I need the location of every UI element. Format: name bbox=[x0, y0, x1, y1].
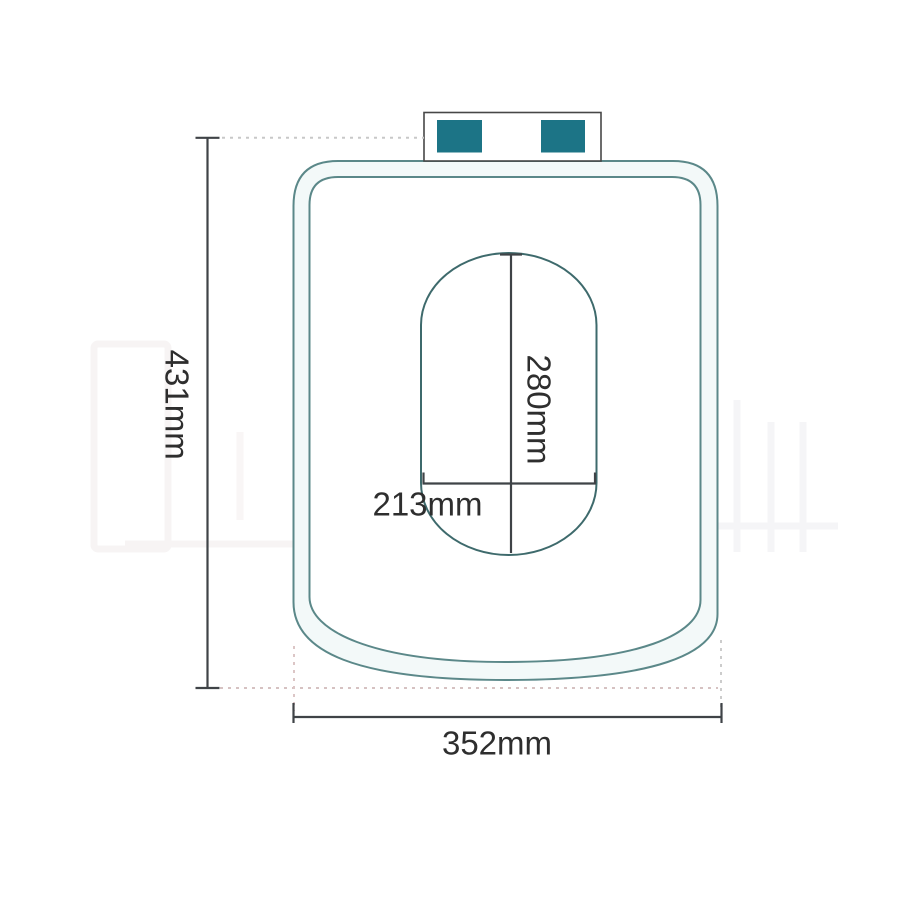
svg-text:213mm: 213mm bbox=[372, 486, 482, 523]
svg-text:431mm: 431mm bbox=[159, 350, 196, 460]
svg-text:352mm: 352mm bbox=[442, 725, 552, 762]
svg-text:280mm: 280mm bbox=[521, 354, 558, 464]
